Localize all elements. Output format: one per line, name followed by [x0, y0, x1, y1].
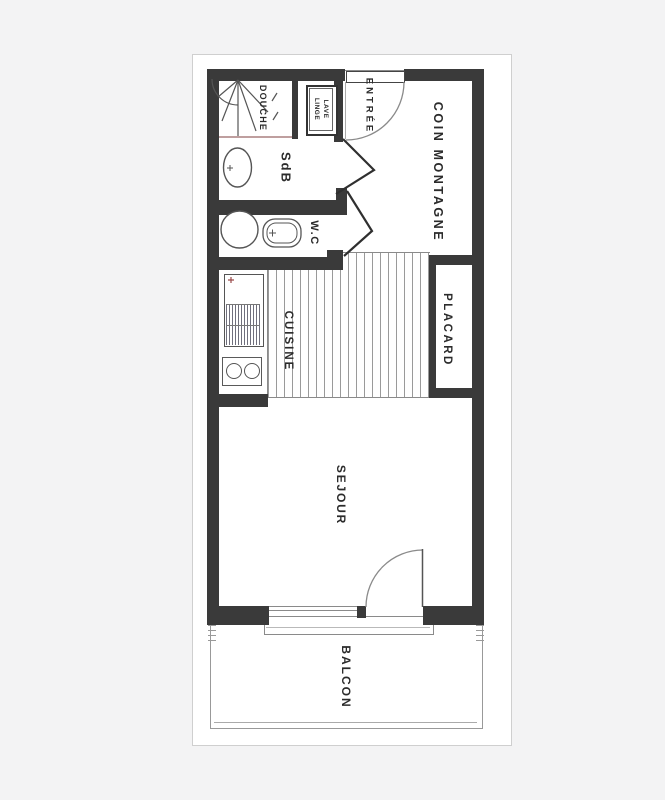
- label-lave-linge: LAVE LINGE: [311, 98, 329, 120]
- sink-icon: [224, 148, 252, 187]
- label-lave: LAVE: [322, 100, 329, 119]
- label-balcon: BALCON: [339, 645, 353, 708]
- shower-icon: [212, 79, 278, 136]
- entree-door-swing: [346, 82, 404, 140]
- label-wc: W.C: [308, 220, 320, 245]
- label-douche: DOUCHE: [258, 85, 268, 131]
- label-sdb: SdB: [279, 152, 294, 184]
- floor-plan-canvas: DOUCHE LAVE LINGE ENTRÉE COIN MONTAGNE S…: [0, 0, 665, 800]
- kitchen-unit-mark: [228, 277, 234, 283]
- label-cuisine: CUISINE: [282, 311, 294, 372]
- sdb-door-chevron: [336, 139, 374, 194]
- fixtures-layer: [0, 0, 665, 800]
- label-entree: ENTRÉE: [364, 78, 375, 135]
- sejour-door-swing: [366, 549, 423, 607]
- wc-door-chevron: [344, 191, 372, 256]
- label-linge: LINGE: [313, 98, 320, 120]
- label-coin-montagne: COIN MONTAGNE: [431, 102, 445, 243]
- toilet-icon: [221, 211, 301, 248]
- label-sejour: SEJOUR: [334, 465, 348, 525]
- label-placard: PLACARD: [441, 293, 453, 367]
